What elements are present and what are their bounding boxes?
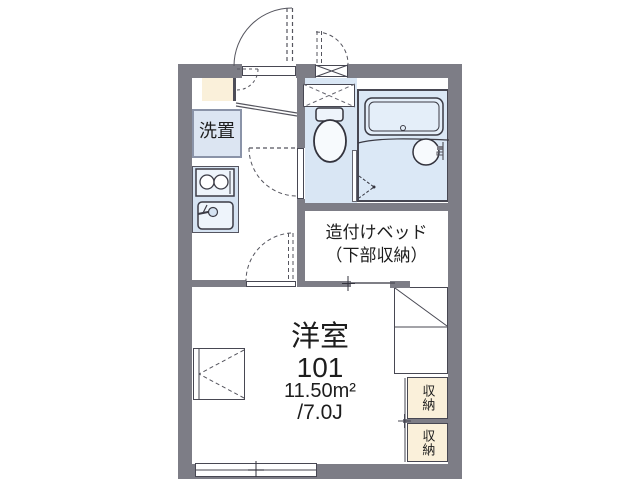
- shoe-box: [202, 78, 236, 101]
- wall-bed-bottom-corner: [390, 281, 410, 288]
- wall-right: [448, 64, 462, 479]
- hall-door-arc: [246, 233, 291, 281]
- entry-step-line: [236, 106, 297, 116]
- wall-top-left: [178, 64, 242, 78]
- bath-door: [352, 150, 357, 202]
- wall-toilet-lower: [297, 199, 305, 287]
- hall-door: [246, 281, 296, 287]
- shelf-box: [303, 84, 355, 107]
- wall-top-mid: [296, 64, 316, 78]
- wall-top-right: [347, 64, 462, 78]
- main-window: [195, 463, 317, 477]
- entry-step-line: [236, 103, 297, 113]
- wall-left: [178, 64, 192, 479]
- toilet-door-arc: [249, 148, 297, 196]
- bath-room: [357, 89, 449, 202]
- bed-label-line2: （下部収納）: [305, 247, 448, 265]
- room-type-label: 洋室: [220, 322, 420, 352]
- floor-plan: 洗置 造付けベッド （下部収納） 洋室 101 11.50m² /7.0J 収納…: [0, 0, 640, 486]
- wall-hall-bottom: [192, 280, 246, 287]
- laundry-label: 洗置: [192, 122, 242, 141]
- bed-label-line1: 造付けベッド: [305, 224, 448, 242]
- toilet-door: [297, 148, 304, 199]
- storage-label-1: 収納: [407, 377, 448, 419]
- wall-bed-bottom: [305, 281, 351, 287]
- wall-bed-top: [297, 203, 455, 211]
- meter-box-door-arc: [316, 32, 348, 64]
- room-area-sqm: 11.50m²: [220, 381, 420, 402]
- entrance-door-arc: [234, 8, 292, 66]
- kitchen-unit: [192, 166, 239, 233]
- entrance-door: [242, 66, 296, 76]
- room-area-tatami: /7.0J: [220, 402, 420, 424]
- room-number-label: 101: [220, 353, 420, 382]
- meter-box: [315, 65, 348, 77]
- storage-label-2: 収納: [407, 423, 448, 462]
